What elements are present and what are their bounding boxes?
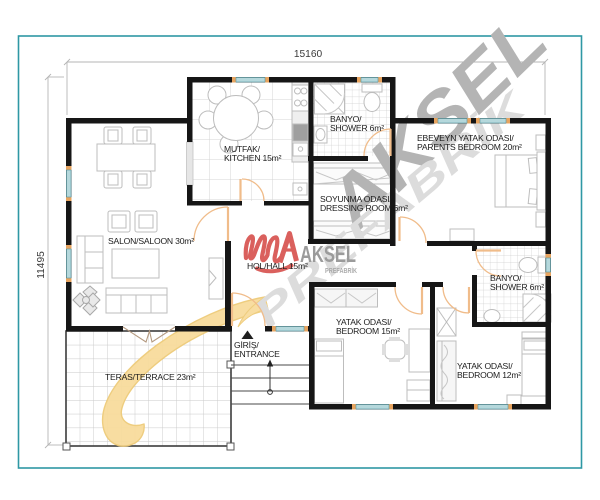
svg-text:SHOWER 6m²: SHOWER 6m² xyxy=(490,282,544,292)
svg-text:DRESSING ROOM 6m²: DRESSING ROOM 6m² xyxy=(320,203,408,213)
svg-text:HOL/HALL 15m²: HOL/HALL 15m² xyxy=(247,261,308,271)
svg-text:11495: 11495 xyxy=(36,251,47,279)
svg-text:BEDROOM 15m²: BEDROOM 15m² xyxy=(336,326,400,336)
svg-text:TERAS/TERRACE 23m²: TERAS/TERRACE 23m² xyxy=(105,372,196,382)
svg-text:SHOWER 6m²: SHOWER 6m² xyxy=(330,123,384,133)
svg-text:ENTRANCE: ENTRANCE xyxy=(234,349,280,359)
svg-text:KITCHEN 15m²: KITCHEN 15m² xyxy=(224,153,282,163)
svg-text:AKSEL: AKSEL xyxy=(300,241,356,267)
svg-text:15160: 15160 xyxy=(294,49,323,60)
svg-text:PREFABRİK: PREFABRİK xyxy=(325,267,357,275)
svg-text:PARENTS BEDROOM 20m²: PARENTS BEDROOM 20m² xyxy=(417,142,522,152)
svg-text:SALON/SALOON 30m²: SALON/SALOON 30m² xyxy=(108,236,194,246)
svg-text:BEDROOM 12m²: BEDROOM 12m² xyxy=(457,370,521,380)
